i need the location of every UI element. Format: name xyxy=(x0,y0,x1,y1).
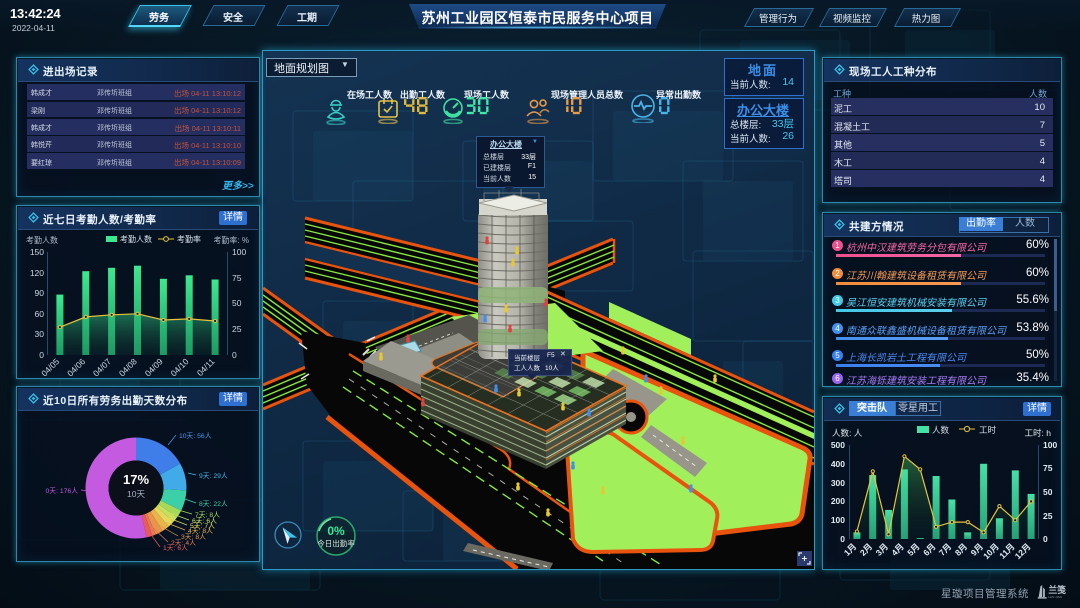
svg-text:100: 100 xyxy=(831,515,845,525)
svg-text:100: 100 xyxy=(1043,440,1057,450)
svg-text:25: 25 xyxy=(1043,511,1053,521)
svg-text:人数: 人: 人数: 人 xyxy=(832,428,863,438)
svg-text:200: 200 xyxy=(831,496,845,506)
svg-text:10天: 10天 xyxy=(127,489,145,499)
svg-text:10月: 10月 xyxy=(981,541,1001,561)
svg-text:12月: 12月 xyxy=(1013,541,1033,561)
svg-text:04/09: 04/09 xyxy=(143,356,165,376)
svg-text:10天: 56人: 10天: 56人 xyxy=(179,432,212,440)
svg-text:9天: 29人: 9天: 29人 xyxy=(199,472,228,480)
svg-text:考勤人数: 考勤人数 xyxy=(120,234,152,244)
svg-text:1天: 6人: 1天: 6人 xyxy=(163,544,188,552)
svg-text:60: 60 xyxy=(35,309,45,319)
svg-text:考勤率: 考勤率 xyxy=(177,234,201,244)
svg-text:考勤人数: 考勤人数 xyxy=(26,235,58,245)
svg-text:2月: 2月 xyxy=(858,541,874,557)
svg-text:100: 100 xyxy=(232,247,246,257)
svg-text:0天: 176人: 0天: 176人 xyxy=(46,487,79,495)
svg-text:30: 30 xyxy=(35,329,45,339)
svg-text:0: 0 xyxy=(39,350,44,360)
svg-text:兰笺: 兰笺 xyxy=(1048,584,1066,595)
svg-text:25: 25 xyxy=(232,324,242,334)
svg-text:04/08: 04/08 xyxy=(117,356,139,376)
svg-text:5月: 5月 xyxy=(905,541,921,557)
svg-text:04/10: 04/10 xyxy=(168,356,190,376)
svg-text:75: 75 xyxy=(1043,463,1053,473)
svg-text:50: 50 xyxy=(232,298,242,308)
svg-text:3月: 3月 xyxy=(874,541,890,557)
svg-text:工时: h: 工时: h xyxy=(1025,428,1052,438)
svg-text:500: 500 xyxy=(831,440,845,450)
svg-text:0: 0 xyxy=(1043,534,1048,544)
svg-text:04/11: 04/11 xyxy=(195,356,217,376)
svg-text:工时: 工时 xyxy=(979,425,997,435)
svg-text:400: 400 xyxy=(831,459,845,469)
svg-text:6月: 6月 xyxy=(921,541,937,557)
svg-text:考勤率: %: 考勤率: % xyxy=(213,235,249,245)
svg-text:0: 0 xyxy=(232,350,237,360)
svg-text:11月: 11月 xyxy=(997,541,1016,560)
svg-text:90: 90 xyxy=(35,288,45,298)
svg-text:17%: 17% xyxy=(123,472,149,487)
svg-text:8月: 8月 xyxy=(953,541,969,557)
svg-text:300: 300 xyxy=(831,478,845,488)
svg-text:04/07: 04/07 xyxy=(91,356,113,376)
svg-text:LAN JIAN: LAN JIAN xyxy=(1048,595,1062,599)
svg-text:04/06: 04/06 xyxy=(65,356,87,376)
svg-text:75: 75 xyxy=(232,273,242,283)
svg-text:8天: 22人: 8天: 22人 xyxy=(199,500,228,508)
svg-text:50: 50 xyxy=(1043,487,1053,497)
svg-text:120: 120 xyxy=(30,268,44,278)
svg-text:7月: 7月 xyxy=(937,541,953,557)
svg-text:0: 0 xyxy=(840,534,845,544)
svg-text:150: 150 xyxy=(30,247,44,257)
svg-text:人数: 人数 xyxy=(932,425,950,435)
svg-text:4月: 4月 xyxy=(889,541,905,557)
